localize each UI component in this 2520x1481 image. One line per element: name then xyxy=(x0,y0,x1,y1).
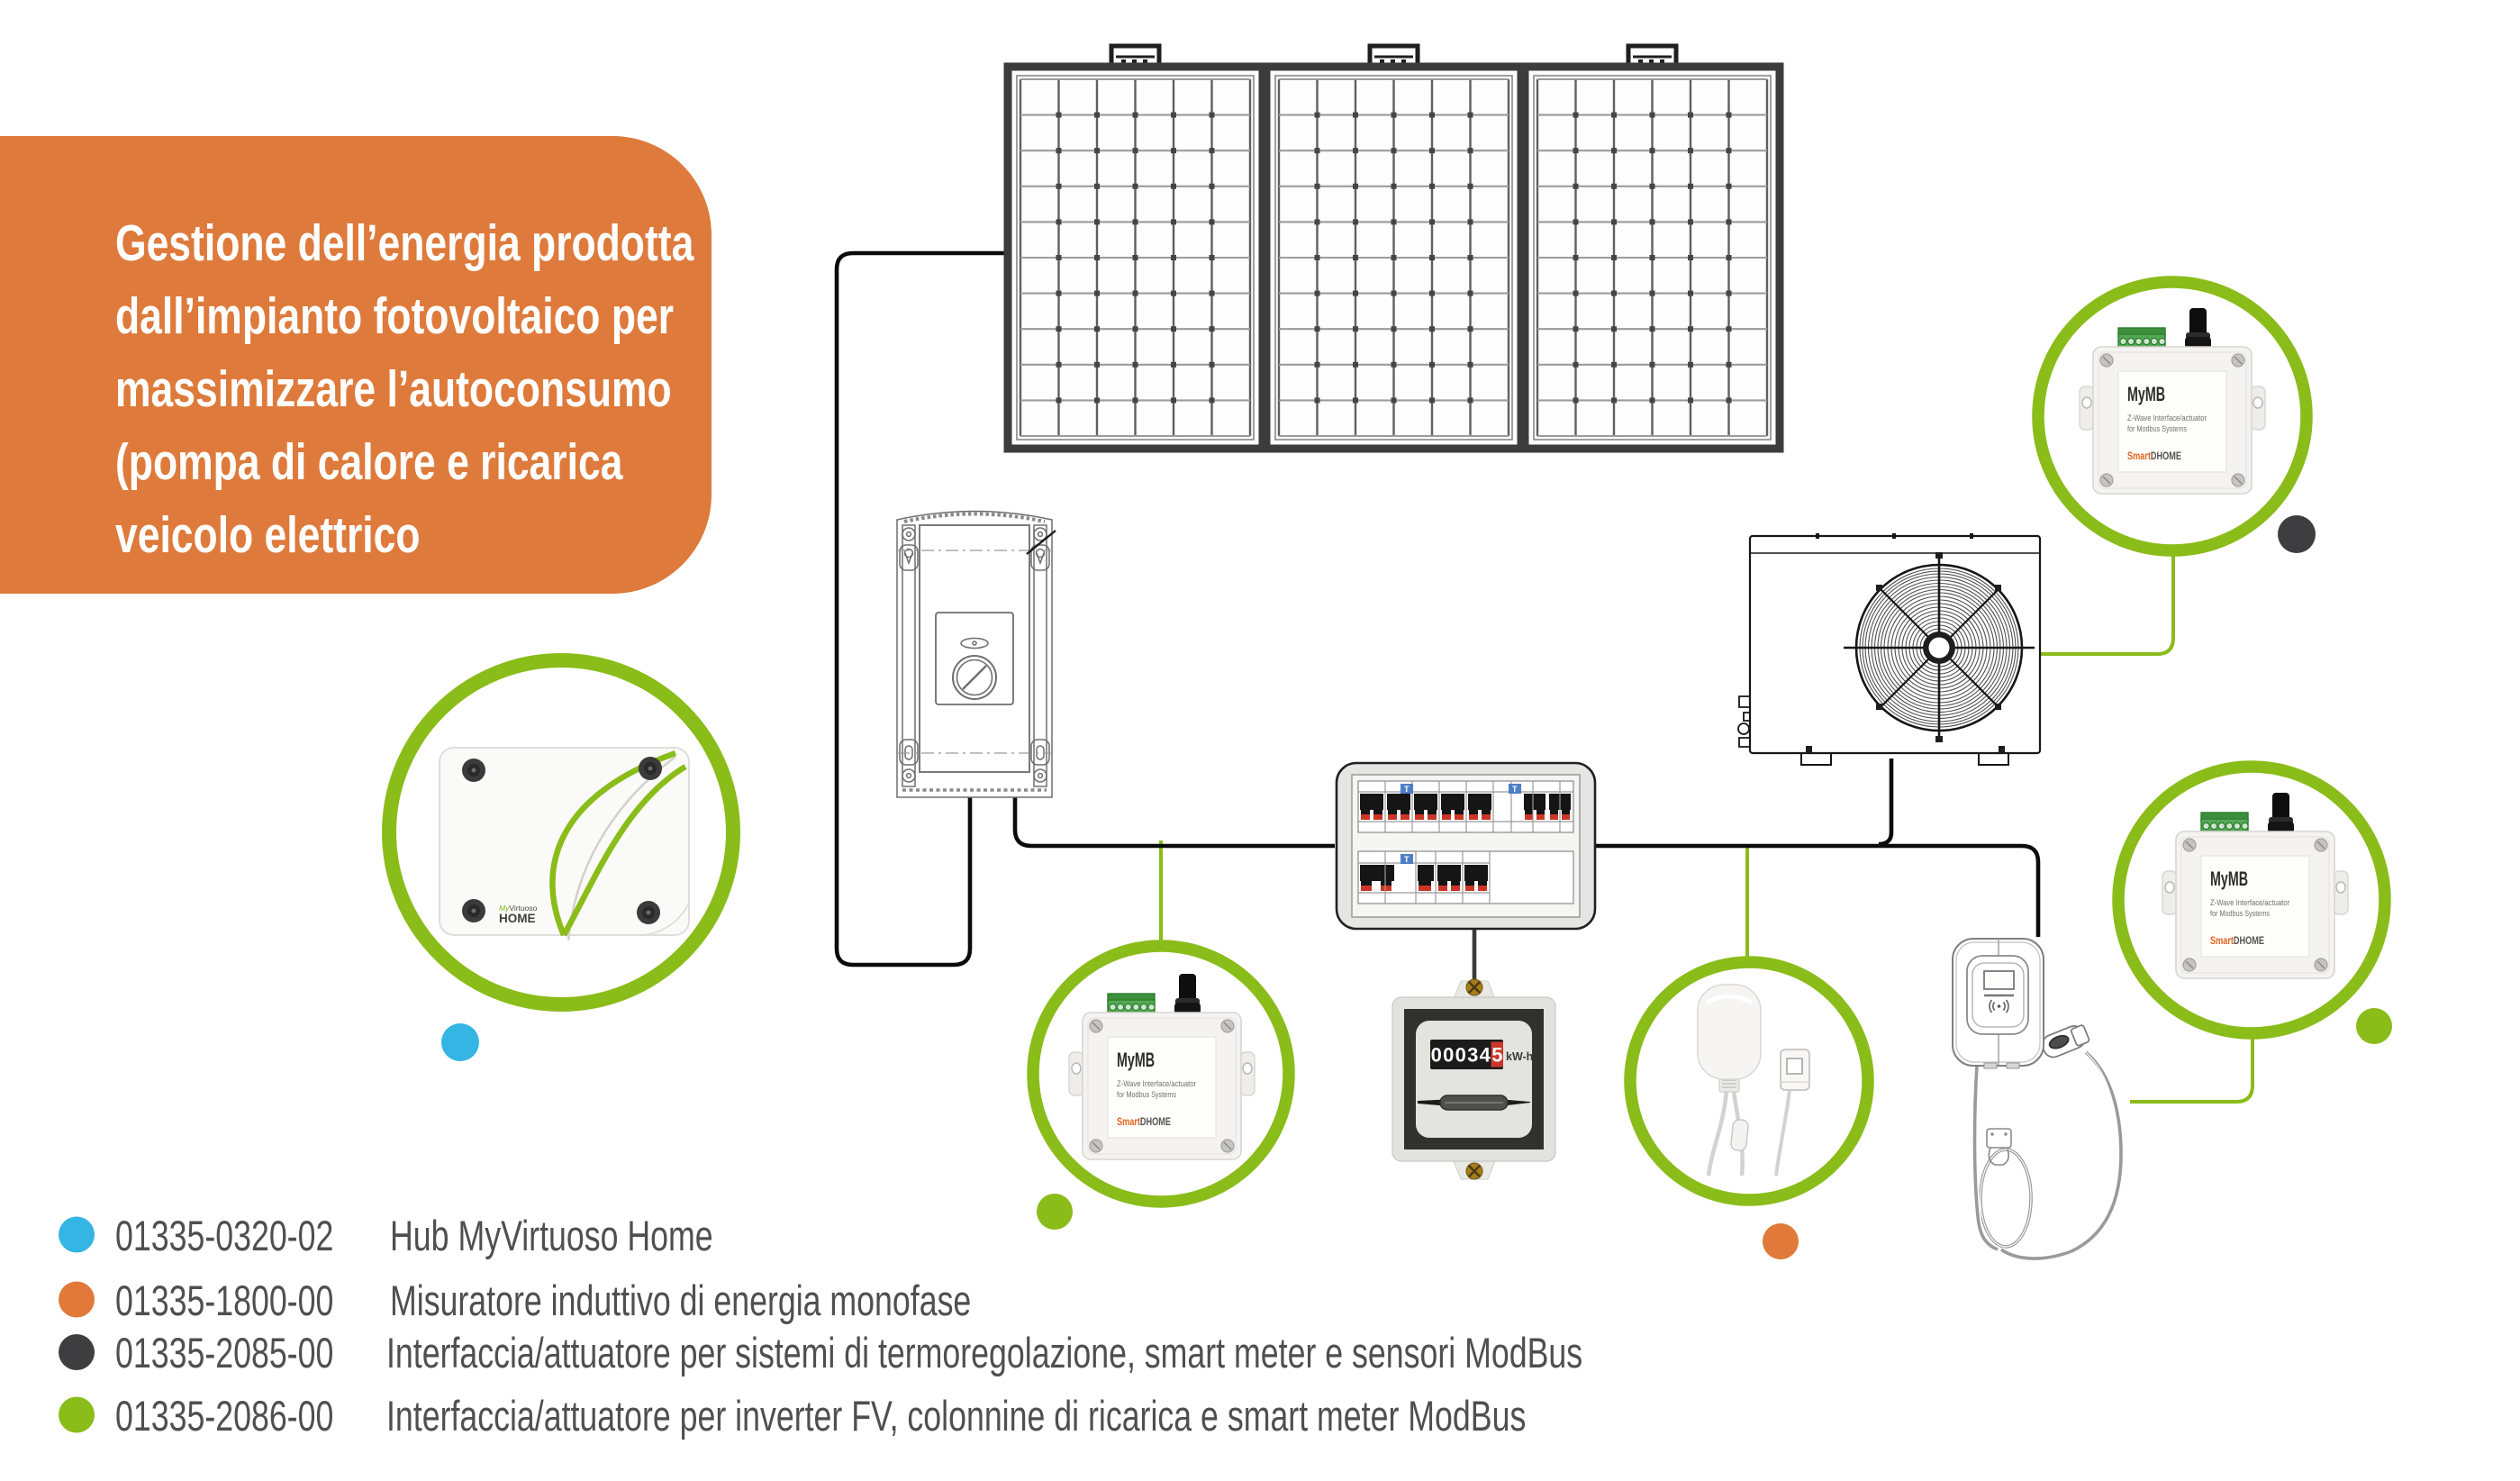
svg-text:T: T xyxy=(1404,855,1410,864)
svg-text:T: T xyxy=(1404,785,1410,794)
svg-text:00034: 00034 xyxy=(1431,1044,1492,1067)
svg-text:T: T xyxy=(1512,785,1518,794)
svg-text:kW-h: kW-h xyxy=(1506,1050,1533,1063)
svg-text:5: 5 xyxy=(1491,1044,1502,1067)
svg-text:HOME: HOME xyxy=(499,912,536,925)
